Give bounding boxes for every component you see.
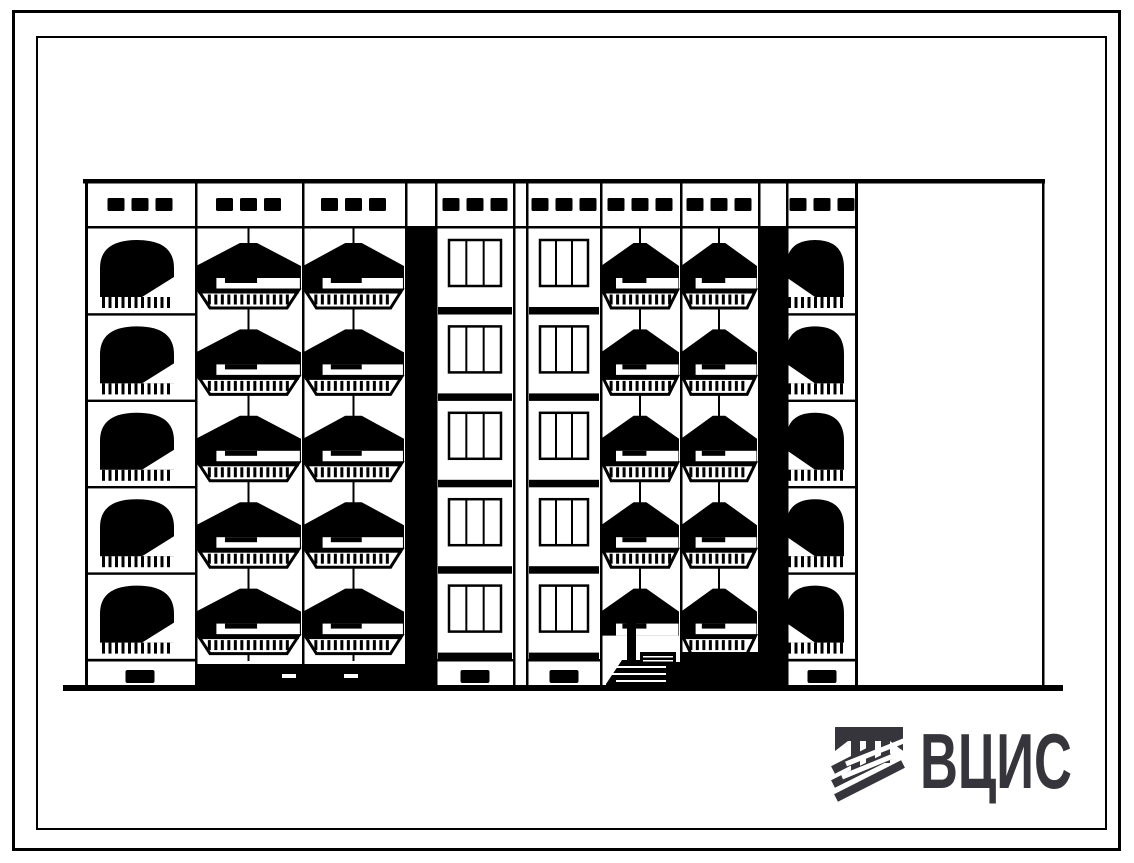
window-unit [529,326,599,401]
hanger-stem [718,394,720,401]
balcony-railing-hatch [788,297,843,308]
railing-top-bar [682,290,755,294]
canopy-balcony-unit [303,228,404,315]
railing-top-bar [682,376,755,380]
door-head [622,451,646,456]
attic-vent [580,198,597,211]
panel-joint-line [195,180,198,687]
window [449,586,501,632]
attic-vent [608,198,625,211]
balcony-railing-hatch [689,295,744,305]
attic-vent [532,198,549,211]
attic-vent [491,198,508,211]
railing-top-bar [305,549,402,553]
hanger-stem [639,567,641,574]
shadow-gap [282,674,296,678]
panel-joint-line [758,180,761,687]
door-head [225,624,257,629]
attic-vent [711,198,728,211]
floor-slab-band [529,653,599,661]
floor-line [85,486,195,488]
canopy-balcony-unit [196,487,301,574]
door-head [622,537,646,542]
bay-8-arched-balconies [786,198,858,683]
railing-top-bar [198,636,299,640]
joint-line [526,180,529,687]
window [449,326,501,372]
hanger-stem [353,308,355,315]
attic-vents [108,198,173,211]
step-line [610,666,666,668]
window-mullion [483,326,485,372]
railing-top-bar [682,636,755,640]
basement-line [786,659,858,662]
attic-vent [656,198,673,211]
attic-vent [814,198,831,211]
floor-line [786,572,858,574]
floor-slab-band [438,566,512,574]
window [449,240,501,286]
balcony-railing-hatch [102,643,170,654]
door-head [702,537,725,542]
canopy-balcony-unit [196,228,301,315]
attic-vent [632,198,649,211]
balcony-railing-hatch [102,383,170,394]
floor-line [85,572,195,574]
bay-4-windows [438,198,512,683]
arched-balcony-unit [85,499,195,575]
railing-top-bar [198,463,299,467]
arched-balcony-unit [786,326,858,402]
attic-vent [216,198,233,211]
shadow-band [405,226,437,687]
door-head [225,451,257,456]
attic-vent [156,198,173,211]
hanger-stem [248,654,250,661]
attic-vents [216,198,281,211]
floor-slab-band [529,566,599,574]
hanger-stem [639,308,641,315]
balcony-railing-hatch [788,556,843,567]
window-mullion [465,326,467,372]
hanger-stem [718,567,720,574]
floor-slab-band [529,480,599,488]
canopy-balcony-unit [196,314,301,401]
arched-balcony-unit [786,413,858,489]
canopy-balcony-unit [303,401,404,488]
balcony-railing-hatch [689,467,744,477]
window [540,586,588,632]
attic-vents [790,198,855,211]
window-unit [438,586,512,661]
joint-line [513,180,516,687]
floor-slab-band [438,393,512,401]
window-mullion [571,240,573,286]
shadow-gap [344,674,358,678]
arched-balcony-unit [786,586,858,662]
panel-joint-line [405,180,408,687]
attic-vents [608,198,673,211]
window-unit [529,586,599,661]
door-head [702,364,725,369]
canopy-balcony-unit [681,574,757,661]
canopy-balcony-unit [681,401,757,488]
window-mullion [571,586,573,632]
bay-2-canopy-balconies [196,198,301,661]
canopy-balcony-unit [601,574,679,636]
step-line [612,673,666,675]
floor-line [786,313,858,315]
shadow-band-2-shadow-band [758,226,786,687]
window-mullion [555,413,557,459]
balcony-railing-hatch [788,383,843,394]
canopy-balcony-unit [196,401,301,488]
window [449,413,501,459]
institute-logo-text: ВЦИС [920,717,1072,805]
attic-vent [838,198,855,211]
door-head [331,451,362,456]
window-mullion [571,326,573,372]
bay-1-arched-balconies [85,198,195,683]
basement-line [85,659,195,662]
panel-joint-line [786,180,789,687]
ground-floor-shadow [682,652,758,687]
balcony-railing-hatch [102,470,170,481]
door-head [331,624,362,629]
attic-vent [264,198,281,211]
institute-logo: ВЦИС [833,717,1072,805]
railing-top-bar [602,290,677,294]
sign-line [643,656,673,658]
basement-line [528,659,600,662]
window-mullion [465,240,467,286]
basement-vent [550,670,579,683]
hanger-stem [353,481,355,488]
arched-balcony-unit [85,240,195,316]
railing-top-bar [682,463,755,467]
attic-vent [735,198,752,211]
floor-slab-band [438,480,512,488]
canopy-balcony-unit [681,228,757,315]
canopy-balcony-unit [303,314,404,401]
hanger-stem [248,481,250,488]
entrance-sign [640,652,676,666]
railing-top-bar [602,463,677,467]
window-mullion [571,499,573,545]
hanger-stem [353,654,355,661]
panel-joint-line [600,180,603,687]
hanger-stem [718,481,720,488]
window-mullion [483,413,485,459]
canopy-balcony-unit [196,574,301,661]
window-unit [529,240,599,315]
left-block-ground-shadow [196,664,420,687]
basement-vent [461,670,490,683]
door-head [225,364,257,369]
basement-vent [126,670,155,683]
window-mullion [555,586,557,632]
arched-balcony-unit [85,326,195,402]
balcony-railing-hatch [689,640,744,650]
sign-line [643,660,673,662]
canopy-balcony-unit [303,487,404,574]
window-mullion [465,586,467,632]
attic-vent [467,198,484,211]
attic-vent [132,198,149,211]
floor-line [786,400,858,402]
door-head [622,278,646,283]
arched-balcony-unit [85,413,195,489]
block-joint-joint [513,180,529,687]
hanger-stem [353,394,355,401]
arched-balcony-unit [85,586,195,662]
canopy-balcony-unit [601,228,679,315]
shadow-band-1-shadow-band [405,226,437,687]
window [540,326,588,372]
door-head [622,364,646,369]
railing-top-bar [305,376,402,380]
hanger-stem [248,308,250,315]
ground-floor-shadow [196,664,420,687]
floor-line [786,486,858,488]
floor-slab-band [529,307,599,315]
floor-line [85,313,195,315]
window-unit [529,413,599,488]
attic-vent [345,198,362,211]
balcony-railing-hatch [689,381,744,391]
attic-vent [108,198,125,211]
attic-vent [240,198,257,211]
window-unit [438,499,512,574]
window-unit [438,240,512,315]
canopy-balcony-unit [681,487,757,574]
window [540,499,588,545]
window-mullion [465,413,467,459]
window-mullion [555,326,557,372]
attic-vent [790,198,807,211]
door-head [331,364,362,369]
panel-joint-line [302,180,305,687]
attic-bottom-line [85,226,858,229]
attic-vent [443,198,460,211]
adjacent-block-outline [1042,180,1045,687]
window-mullion [465,499,467,545]
canopy-balcony-unit [601,401,679,488]
railing-top-bar [602,376,677,380]
balcony-railing-hatch [788,470,843,481]
balcony-railing-hatch [689,554,744,564]
floor-line [85,400,195,402]
door-head [702,624,725,629]
window-mullion [483,586,485,632]
institute-logo-icon [833,727,906,798]
floor-slab-band [438,653,512,661]
railing-top-bar [602,549,677,553]
building-elevation-drawing: ВЦИС [0,0,1134,863]
roof-parapet-line [83,179,1045,184]
ground-line [63,685,1063,691]
bay-7-canopy-balconies [681,198,758,687]
scanned-drawing-sheet: ВЦИС [0,0,1134,863]
window-unit [438,326,512,401]
attic-vent [556,198,573,211]
door-head [702,451,725,456]
window [540,240,588,286]
window [540,413,588,459]
canopy-balcony-unit [601,487,679,574]
railing-top-bar [198,549,299,553]
window-unit [529,499,599,574]
railing-top-bar [198,376,299,380]
window-mullion [555,499,557,545]
step-line [616,680,666,682]
railing-top-bar [682,549,755,553]
panel-joint-line [435,180,438,687]
window-unit [438,413,512,488]
attic-vents [687,198,752,211]
window-mullion [571,413,573,459]
building-right-edge [855,180,858,687]
canopy-balcony-unit [303,574,404,661]
railing-top-bar [305,463,402,467]
door-head [702,278,725,283]
attic-vent [321,198,338,211]
balcony-railing-hatch [102,297,170,308]
attic-vent [369,198,386,211]
floor-slab-band [529,393,599,401]
door-head [225,278,257,283]
basement-line [437,659,513,662]
bay-3-canopy-balconies [303,198,404,661]
door-head [331,278,362,283]
door-head [331,537,362,542]
hanger-stem [248,394,250,401]
hanger-stem [353,567,355,574]
railing-top-bar [198,290,299,294]
railing-top-bar [305,290,402,294]
attic-vents [532,198,597,211]
railing-top-bar [305,636,402,640]
hanger-stem [718,308,720,315]
building-left-edge [85,180,88,687]
balcony-railing-hatch [788,643,843,654]
door-head [225,537,257,542]
balcony-railing-hatch [102,556,170,567]
attic-vents [321,198,386,211]
canopy-balcony-unit [601,314,679,401]
shadow-band [758,226,786,687]
window-mullion [555,240,557,286]
hanger-stem [639,394,641,401]
arched-balcony-unit [786,499,858,575]
window-mullion [483,499,485,545]
window [449,499,501,545]
hanger-stem [248,567,250,574]
hanger-stem [639,481,641,488]
bay-5-windows [529,198,599,683]
floor-slab-band [438,307,512,315]
arched-balcony-unit [786,240,858,316]
attic-vents [443,198,508,211]
canopy-balcony-unit [681,314,757,401]
attic-vent [687,198,704,211]
window-mullion [483,240,485,286]
panel-joint-line [680,180,683,687]
basement-vent [808,670,837,683]
